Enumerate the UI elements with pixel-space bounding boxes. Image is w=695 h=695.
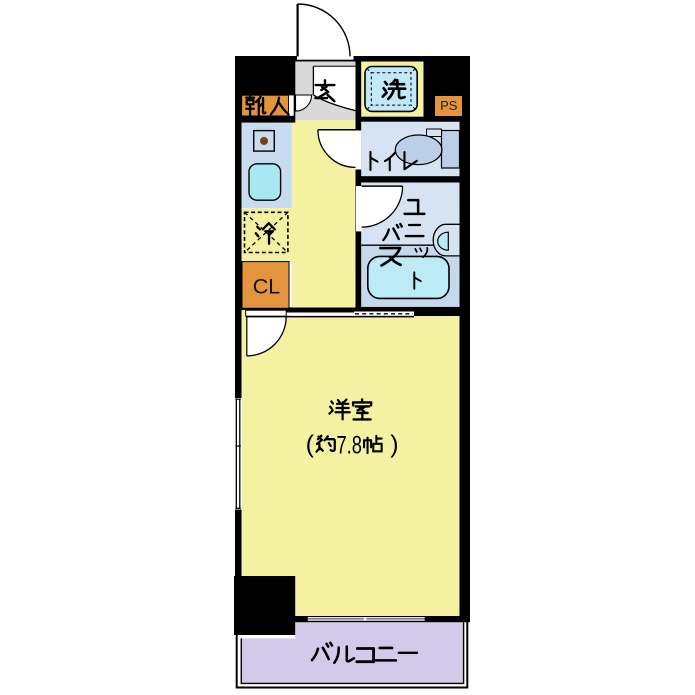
svg-text:(: ( <box>306 431 315 459</box>
svg-text:CL: CL <box>253 275 281 299</box>
svg-text:7.8: 7.8 <box>336 431 362 459</box>
svg-text:): ) <box>390 431 398 459</box>
svg-text:PS: PS <box>440 98 458 113</box>
